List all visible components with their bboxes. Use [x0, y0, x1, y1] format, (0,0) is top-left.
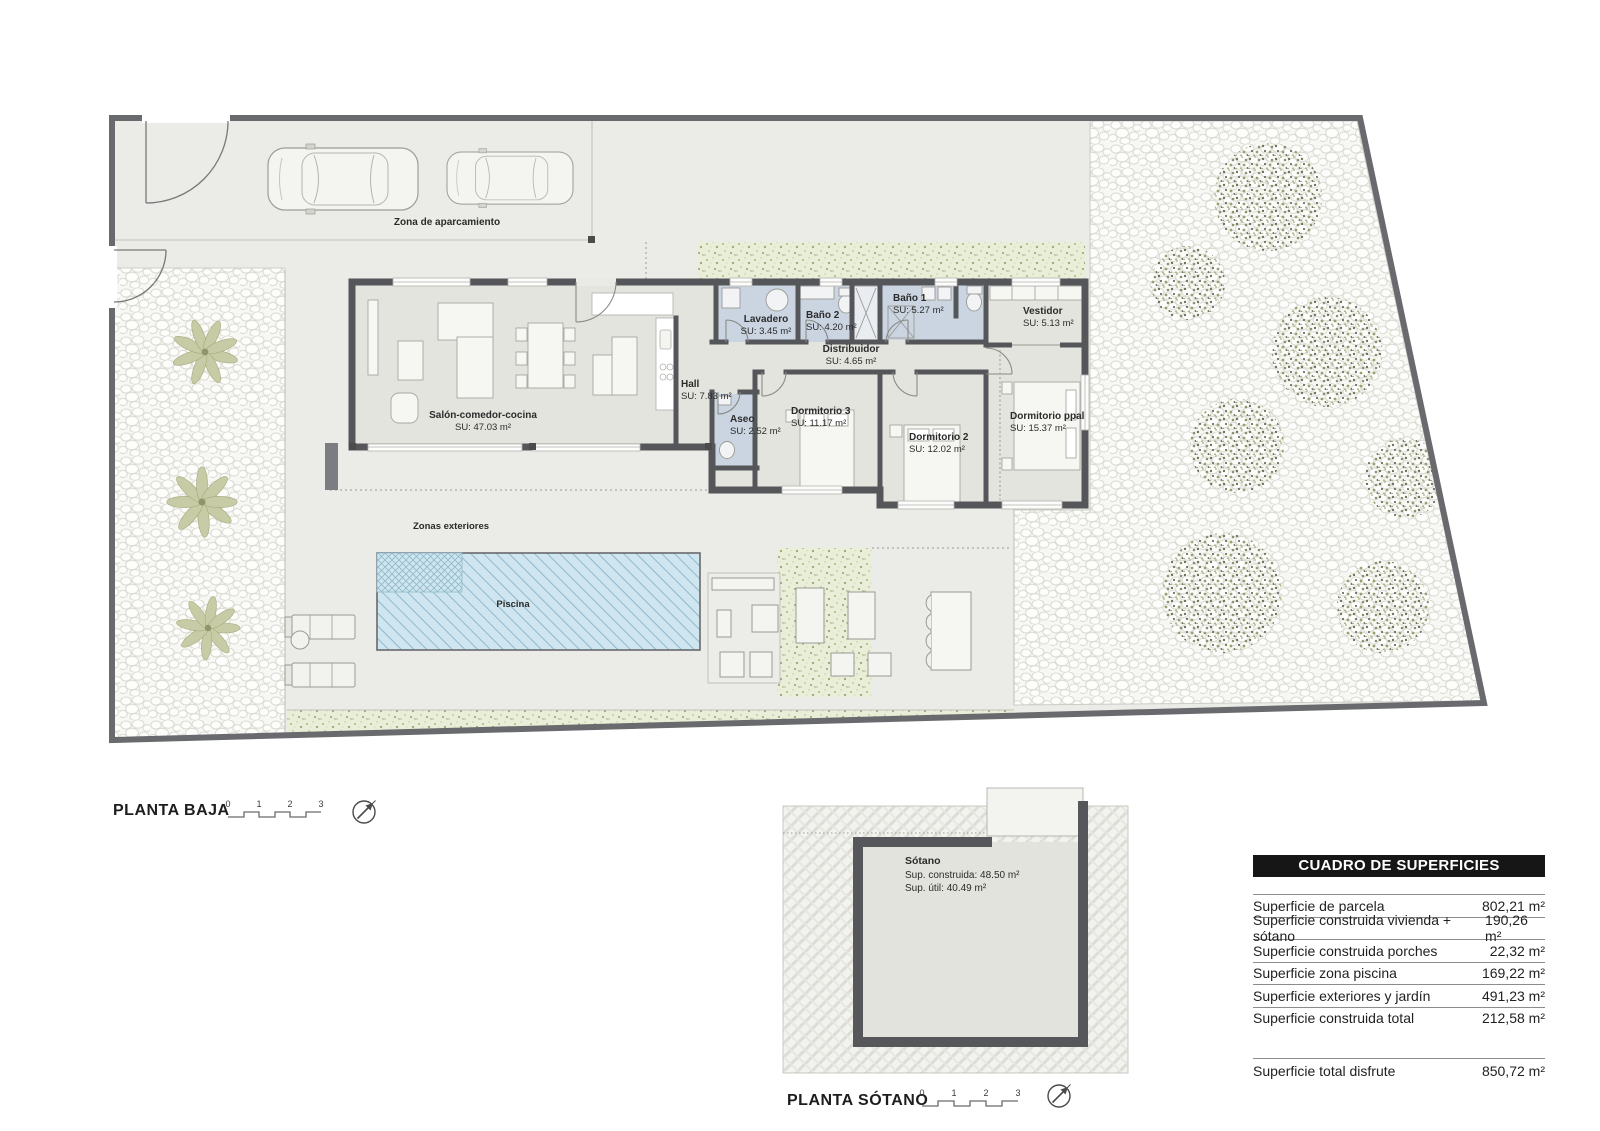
table-row: Superficie construida total 212,58 m² [1253, 1007, 1545, 1030]
basement-built-area: Sup. construida: 48.50 m² [905, 869, 1020, 882]
row-label: Superficie exteriores y jardín [1253, 988, 1430, 1004]
surface-table-header: CUADRO DE SUPERFICIES [1253, 855, 1545, 877]
room-label-banio2: Baño 2 SU: 4.20 m² [806, 310, 857, 334]
room-label-dorm3: Dormitorio 3 SU: 11.17 m² [791, 406, 850, 430]
row-label: Superficie zona piscina [1253, 965, 1397, 981]
pool-label: Piscina [496, 599, 529, 610]
table-row: Superficie exteriores y jardín 491,23 m² [1253, 984, 1545, 1007]
scale-tick: 0 [919, 1088, 924, 1098]
room-label-banio1: Baño 1 SU: 5.27 m² [893, 293, 944, 317]
north-arrow-icon-basement [1048, 1085, 1071, 1108]
row-label: Superficie construida porches [1253, 943, 1437, 959]
room-label-lavadero: Lavadero SU: 3.45 m² [741, 314, 792, 338]
room-label-salon: Salón-comedor-cocina SU: 47.03 m² [429, 410, 537, 434]
surface-table-rows: Superficie de parcela 802,21 m² Superfic… [1253, 894, 1545, 1083]
scale-tick: 2 [287, 799, 292, 809]
row-value: 169,22 m² [1482, 965, 1545, 981]
table-row: Superficie construida vivienda + sótano … [1253, 917, 1545, 940]
outdoor-deck [708, 573, 780, 683]
row-value: 212,58 m² [1482, 1010, 1545, 1026]
basement-stairs [987, 788, 1083, 836]
scale-tick: 0 [225, 799, 230, 809]
table-row: Superficie construida porches 22,32 m² [1253, 939, 1545, 962]
basement-title: PLANTA SÓTANO [787, 1092, 928, 1110]
basement-usable-area: Sup. útil: 40.49 m² [905, 882, 986, 895]
room-label-hall: Hall SU: 7.83 m² [681, 379, 732, 403]
table-row: Superficie zona piscina 169,22 m² [1253, 962, 1545, 985]
row-value: 190,26 m² [1485, 912, 1545, 944]
scale-tick: 1 [256, 799, 261, 809]
outdoor-dining [926, 592, 971, 670]
scale-bar-ground [228, 812, 321, 817]
room-label-dormppal: Dormitorio ppal SU: 15.37 m² [1010, 411, 1084, 435]
floor-plan-sheet: Zona de aparcamiento Zonas exteriores Pi… [0, 0, 1600, 1131]
scale-bar-basement [922, 1101, 1018, 1106]
scale-tick: 3 [1015, 1088, 1020, 1098]
scale-tick: 2 [983, 1088, 988, 1098]
north-arrow-icon [353, 801, 376, 824]
room-label-dorm2: Dormitorio 2 SU: 12.02 m² [909, 432, 968, 456]
room-label-aseo: Aseo SU: 2.52 m² [730, 414, 781, 438]
scale-tick: 1 [951, 1088, 956, 1098]
row-label: Superficie construida total [1253, 1010, 1414, 1026]
ground-floor-title: PLANTA BAJA [113, 802, 230, 820]
row-value: 491,23 m² [1482, 988, 1545, 1004]
pool [377, 553, 700, 650]
basement-room-name: Sótano [905, 855, 941, 868]
room-label-distribuidor: Distribuidor SU: 4.65 m² [823, 344, 880, 368]
exteriors-label: Zonas exteriores [413, 521, 489, 532]
scale-tick: 3 [318, 799, 323, 809]
table-total-row: Superficie total disfrute 850,72 m² [1253, 1058, 1545, 1083]
pool-steps [377, 553, 462, 592]
row-label: Superficie construida vivienda + sótano [1253, 912, 1485, 944]
parking-label: Zona de aparcamiento [394, 217, 500, 228]
room-label-vestidor: Vestidor SU: 5.13 m² [1023, 306, 1074, 330]
row-label: Superficie total disfrute [1253, 1063, 1395, 1079]
row-value: 850,72 m² [1482, 1063, 1545, 1079]
surface-table: CUADRO DE SUPERFICIES Superficie de parc… [1253, 855, 1545, 1083]
basement-plan [783, 788, 1128, 1073]
row-value: 22,32 m² [1490, 943, 1545, 959]
